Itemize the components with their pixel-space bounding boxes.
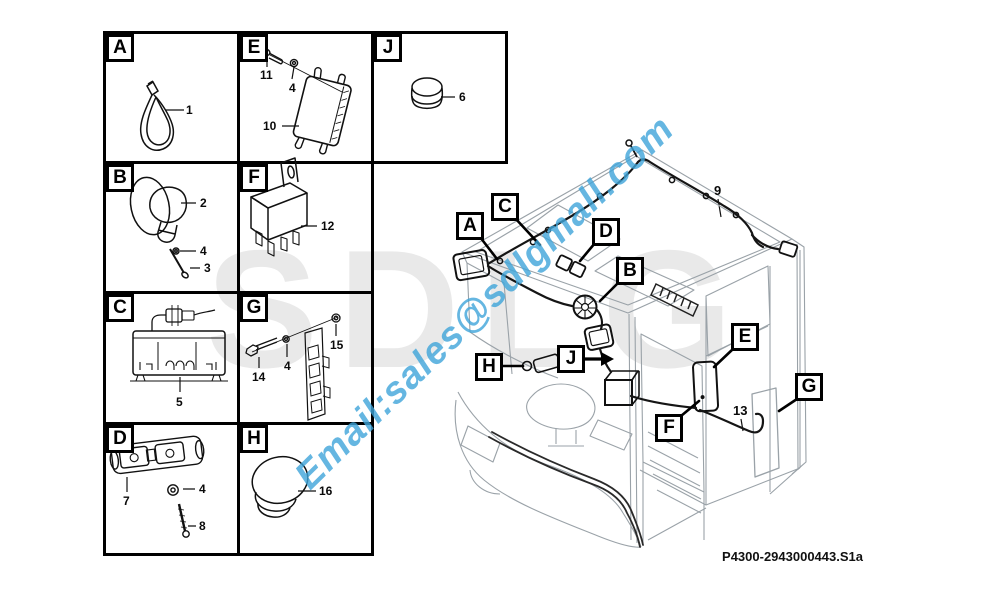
- grid-cell-letter-c: C: [106, 294, 134, 322]
- work-lamp-inner: [584, 324, 614, 351]
- part-drawing-horn: [125, 174, 189, 279]
- part-label-6: 6: [459, 91, 466, 103]
- wire-ref-9: 9: [714, 184, 721, 197]
- part-label-10: 10: [263, 120, 276, 132]
- part-label-4b: 4: [200, 245, 207, 257]
- part-drawing-control-unit: [130, 305, 228, 381]
- alarm-fan: [574, 296, 597, 319]
- part-drawing-cap: [412, 78, 443, 108]
- callout-f: F: [655, 414, 683, 442]
- grid-cell-letter-e: E: [240, 34, 268, 62]
- callout-b: B: [616, 257, 644, 285]
- part-label-5: 5: [176, 396, 183, 408]
- part-drawing-controller-e: [261, 47, 355, 157]
- part-label-14: 14: [252, 371, 265, 383]
- part-label-15: 15: [330, 339, 343, 351]
- front-harness: [489, 432, 643, 547]
- callout-h: H: [475, 353, 503, 381]
- callout-c: C: [491, 193, 519, 221]
- part-drawing-cable-tie: [141, 81, 174, 150]
- wire-ref-13: 13: [733, 404, 747, 417]
- callout-g: G: [795, 373, 823, 401]
- ecu-box-mid: [605, 371, 639, 405]
- dash-plug-h: [523, 354, 561, 373]
- part-label-7: 7: [123, 495, 130, 507]
- part-label-12: 12: [321, 220, 334, 232]
- part-label-1: 1: [186, 104, 193, 116]
- callout-d: D: [592, 218, 620, 246]
- grid-cell-letter-b: B: [106, 164, 134, 192]
- part-drawing-fuse-strip: [246, 314, 340, 420]
- parts-diagram-page: SDLG: [0, 0, 982, 600]
- grid-cell-letter-j: J: [374, 34, 402, 62]
- grid-cell-letter-a: A: [106, 34, 134, 62]
- part-label-3: 3: [204, 262, 211, 274]
- grid-cell-letter-d: D: [106, 425, 134, 453]
- callout-a: A: [456, 212, 484, 240]
- part-label-4d: 4: [199, 483, 206, 495]
- part-label-4g: 4: [284, 360, 291, 372]
- grid-cell-letter-h: H: [240, 425, 268, 453]
- part-label-2: 2: [200, 197, 207, 209]
- part-label-4e: 4: [289, 82, 296, 94]
- grid-cell-letter-f: F: [240, 164, 268, 192]
- callout-j: J: [557, 345, 585, 373]
- part-label-11: 11: [260, 69, 273, 81]
- j-arrowhead: [601, 352, 614, 366]
- part-label-8: 8: [199, 520, 206, 532]
- corner-connector: [779, 241, 798, 257]
- callout-e: E: [731, 323, 759, 351]
- drawing-number: P4300-2943000443.S1a: [718, 549, 863, 564]
- grid-cell-letter-g: G: [240, 294, 268, 322]
